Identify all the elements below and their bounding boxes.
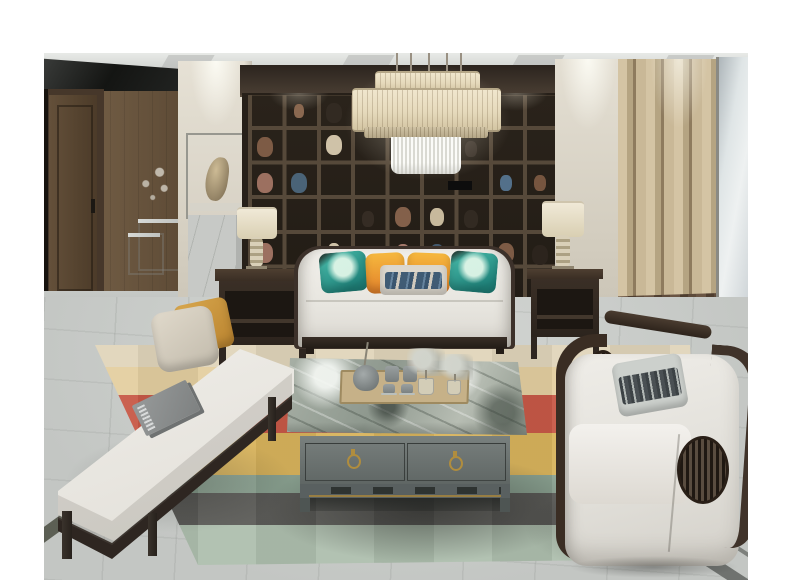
bench-leg [268,397,276,441]
seat-cushion-line [306,300,503,302]
gray-teapot [353,365,379,391]
pillow-teal-right [448,250,498,294]
blue-teapots [291,173,307,193]
lamp-base-right [556,235,570,267]
dried-plant-right [439,354,473,380]
chair-floor-shadow [569,556,739,578]
pillow-print [618,367,682,405]
door-edge [44,89,48,305]
lamp-shade-right [542,201,584,237]
pillow-teal-left [318,250,368,294]
saucer [381,393,397,395]
armchair [549,318,748,580]
tea-canister [385,366,399,382]
lamp-shade-left [237,207,277,239]
table-top [138,219,182,223]
door-panel [57,105,93,291]
downlight-glow [650,59,708,129]
brown-vases [257,137,273,157]
dark-pots [326,103,342,123]
display-case-base [190,203,242,211]
end-table-right-top [527,269,603,279]
end-table-left-opening [225,291,300,337]
daybed-bench [44,333,344,580]
bench-leg [62,511,72,559]
table-top [128,233,160,237]
end-table-left-shelf [225,319,300,323]
chandelier-crystal-fringe [391,137,461,174]
cream-vases [326,135,342,155]
book-pages [137,404,156,431]
table-leg [500,498,510,512]
glass-vase-left [418,378,434,395]
black-box [448,181,472,190]
nesting-table-small [128,233,164,275]
cove-glow [269,93,329,111]
downlight-glow [560,59,616,131]
downlight-glow [190,61,242,127]
lumbar-print [385,272,442,289]
bench-leg [148,513,157,556]
flower-decal [132,163,178,209]
slatted-circle-front [677,436,729,504]
screenshot-canvas [0,0,790,580]
glass-vase-right [447,380,461,395]
brass-ring-pull-left [347,454,361,469]
pillow-lumbar-print [380,265,447,295]
door-handle [91,199,95,213]
lamp-base-left [250,237,263,267]
living-room-photo [44,53,748,580]
beige-pillow [149,304,220,374]
rose-vases [257,173,273,193]
chandelier-mid-tier [352,88,501,132]
saucer [399,393,415,395]
brass-ring-pull-right [449,456,463,471]
